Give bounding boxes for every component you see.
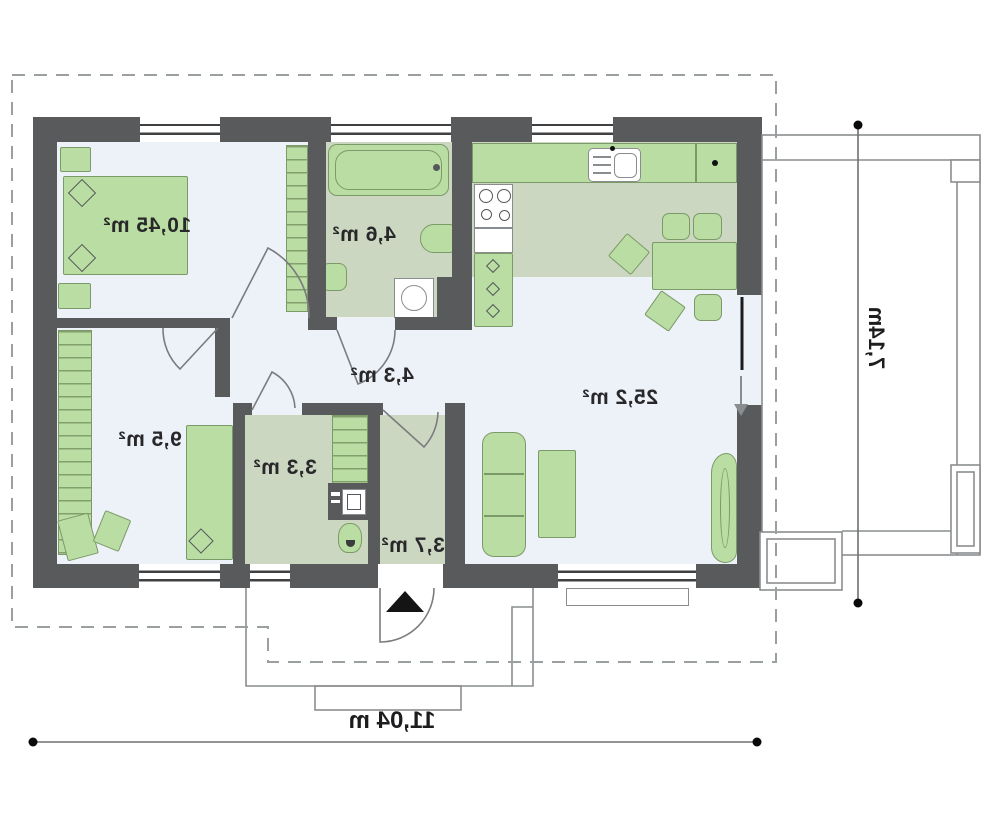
dimension-dot — [854, 599, 863, 608]
dimension-dot — [854, 121, 863, 130]
room-area-label-bathroom: 4,6 m² — [332, 223, 396, 247]
room-area-label-bedroom-second: 9,5 m² — [118, 428, 182, 452]
dimension-dot — [753, 738, 762, 747]
door-arc-bedroom-second — [163, 328, 218, 369]
room-area-label-bedroom-main: 10,45 m² — [103, 214, 191, 238]
terrace-exit-arrow-head — [734, 404, 748, 416]
room-area-label-living-room: 25,2 m² — [582, 386, 658, 410]
dimension-dot — [29, 738, 38, 747]
plan-linework — [0, 0, 1000, 822]
porch-inner-corner — [512, 607, 533, 686]
terrace-planter — [951, 465, 980, 553]
terrace-door — [734, 297, 748, 416]
entrance-arrow-icon — [386, 591, 424, 612]
door-arc-storage — [252, 372, 295, 410]
dimension-depth-label: 7,14m — [863, 307, 889, 369]
room-area-label-hallway: 4,3 m² — [350, 364, 414, 388]
room-area-label-entry: 3,7 m² — [381, 534, 445, 558]
terrace-steps — [760, 532, 842, 590]
porch — [246, 588, 533, 710]
door-arc-bedroom-main — [232, 248, 309, 318]
room-area-label-storage: 3,3 m² — [253, 456, 317, 480]
floor-plan-page: { "rooms": { "bedroom_main": {"area": "1… — [0, 0, 1000, 822]
terrace-post — [951, 160, 980, 182]
door-arcs — [163, 248, 438, 642]
porch-outline — [246, 588, 533, 686]
door-arc-entry — [383, 410, 438, 447]
dimension-width-label: 11,04 m — [349, 707, 436, 735]
